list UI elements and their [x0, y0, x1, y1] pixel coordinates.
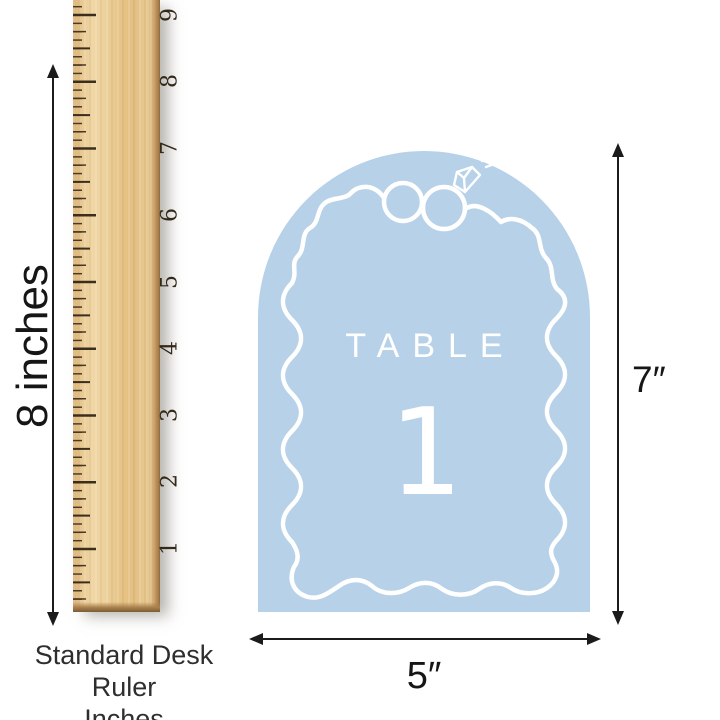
table-number-card: TABLE 1 — [258, 151, 590, 612]
card-width-arrow — [263, 638, 587, 640]
diamond-icon — [454, 152, 494, 192]
ruler-number: 7 — [158, 141, 183, 155]
ruler-number: 5 — [158, 275, 183, 289]
card-height-arrow — [617, 157, 619, 611]
ruler-number: 3 — [158, 408, 183, 422]
ruler-number: 6 — [158, 208, 183, 222]
ruler-number: 2 — [158, 474, 183, 488]
product-dimension-diagram: 9 8 7 6 5 4 3 2 1 8 inches Standard Desk… — [0, 0, 720, 720]
wooden-ruler: 9 8 7 6 5 4 3 2 1 — [73, 0, 160, 612]
ruler-caption-line1: Standard Desk Ruler — [2, 639, 246, 703]
wedding-rings-icon — [384, 183, 465, 229]
card-decoration — [258, 151, 590, 612]
card-height-label: 7″ — [632, 359, 666, 401]
ruler-number: 1 — [158, 541, 183, 555]
ruler-tick-marks — [73, 0, 97, 603]
ruler-end-cap — [73, 602, 160, 612]
card-width-label: 5″ — [374, 655, 474, 698]
ruler-caption: Standard Desk Ruler Inches — [2, 639, 246, 720]
card-title: TABLE — [258, 327, 590, 366]
ruler-caption-line2: Inches — [2, 703, 246, 720]
ruler-number: 4 — [158, 341, 183, 355]
ruler-number: 8 — [158, 74, 183, 88]
ruler-height-label: 8 inches — [8, 258, 58, 434]
ruler-number: 9 — [158, 8, 183, 22]
card-number: 1 — [258, 394, 590, 514]
